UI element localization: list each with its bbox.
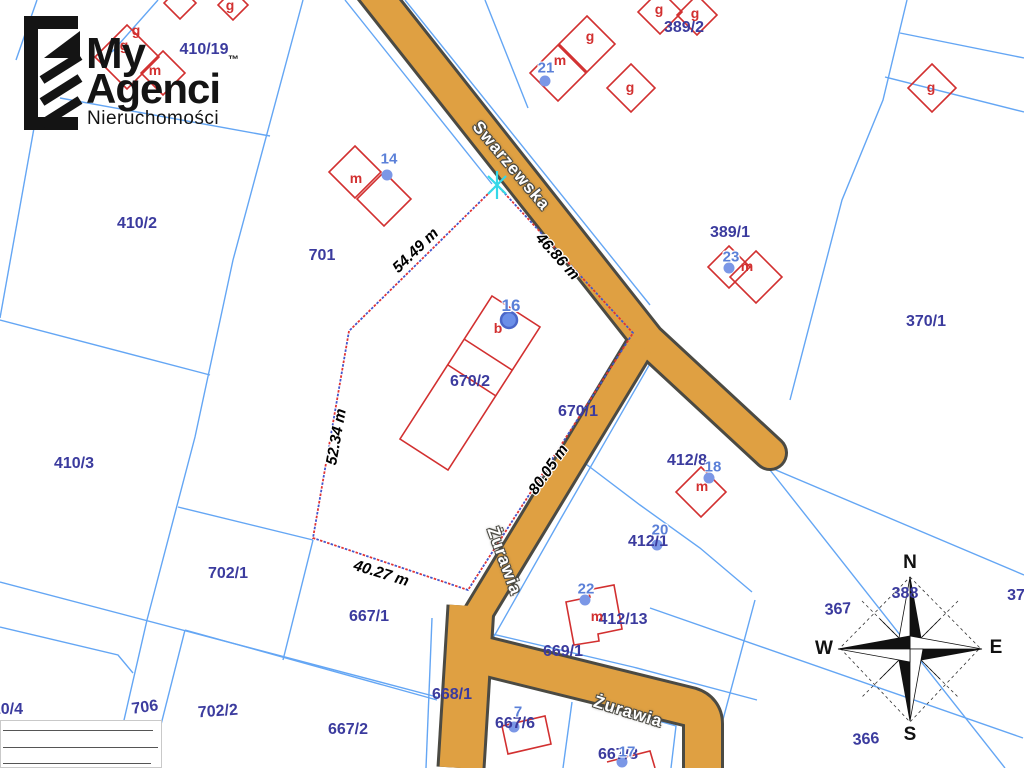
parcel-label-702-2: 702/2 — [197, 702, 238, 723]
scale-line — [3, 730, 153, 731]
parcel-label-706: 706 — [131, 697, 160, 719]
parcel-label-701: 701 — [309, 247, 336, 265]
parcel-label-410-2: 410/2 — [117, 215, 157, 233]
parcel-label-667-2: 667/2 — [328, 721, 368, 739]
address-label-7: 7 — [514, 704, 522, 721]
address-label-16: 16 — [502, 296, 521, 316]
parcel-label-667-1: 667/1 — [349, 608, 389, 626]
parcel-label-366: 366 — [852, 730, 880, 750]
compass-south-label: S — [904, 724, 917, 746]
scale-line — [3, 747, 158, 748]
address-label-14: 14 — [381, 151, 398, 168]
building-letter-g: g — [655, 1, 664, 17]
building-letter-g: g — [691, 5, 700, 21]
building-letter-m: m — [741, 258, 753, 274]
building-letter-g: g — [586, 28, 595, 44]
parcel-label-669-1: 669/1 — [543, 643, 583, 661]
building-letter-g: g — [927, 79, 936, 95]
building-letter-m: m — [696, 478, 708, 494]
parcel-label-670-2: 670/2 — [450, 373, 490, 391]
scale-widget — [0, 720, 162, 768]
compass-north-label: N — [903, 552, 917, 574]
compass-west-label: W — [815, 638, 833, 660]
logo-trademark: ™ — [228, 54, 239, 66]
parcel-label-410-19: 410/19 — [180, 41, 229, 59]
compass-east-label: E — [990, 637, 1003, 659]
parcel-label-670-1: 670/1 — [558, 403, 598, 421]
parcel-label-370-1: 370/1 — [906, 313, 946, 331]
address-label-21: 21 — [538, 60, 555, 77]
parcel-label-410-3: 410/3 — [54, 455, 94, 473]
building-letter-m: m — [350, 170, 362, 186]
address-label-18: 18 — [705, 459, 722, 476]
address-label-20: 20 — [652, 522, 669, 539]
logo-line3: Nieruchomości — [87, 108, 219, 130]
parcel-label-410-4: 410/4 — [0, 701, 23, 719]
parcel-label-702-1: 702/1 — [208, 565, 248, 583]
cadastral-map[interactable]: Swarzewska Żurawia Żurawia 54.49 m 46.86… — [0, 0, 1024, 768]
agency-logo-icon — [22, 14, 84, 134]
address-label-22: 22 — [578, 581, 595, 598]
building-letter-m: m — [591, 608, 603, 624]
building-letter-b: b — [494, 320, 503, 336]
logo-line2: Agenci — [86, 72, 220, 106]
parcel-label-388: 388 — [892, 585, 919, 603]
parcel-label-668-1: 668/1 — [432, 686, 472, 704]
scale-line — [3, 763, 151, 764]
parcel-label-412-13: 412/13 — [599, 611, 648, 629]
parcel-label-37x: 37 — [1007, 587, 1024, 605]
building-letter-m: m — [554, 52, 566, 68]
address-label-17: 17 — [619, 744, 636, 761]
parcel-label-389-2: 389/2 — [664, 19, 704, 37]
building-letter-g: g — [626, 79, 635, 95]
building-letter-g: g — [226, 0, 235, 13]
parcel-label-389-1: 389/1 — [710, 224, 750, 242]
address-label-23: 23 — [723, 249, 740, 266]
parcel-label-412-8: 412/8 — [667, 452, 707, 470]
parcel-label-367: 367 — [824, 600, 852, 620]
